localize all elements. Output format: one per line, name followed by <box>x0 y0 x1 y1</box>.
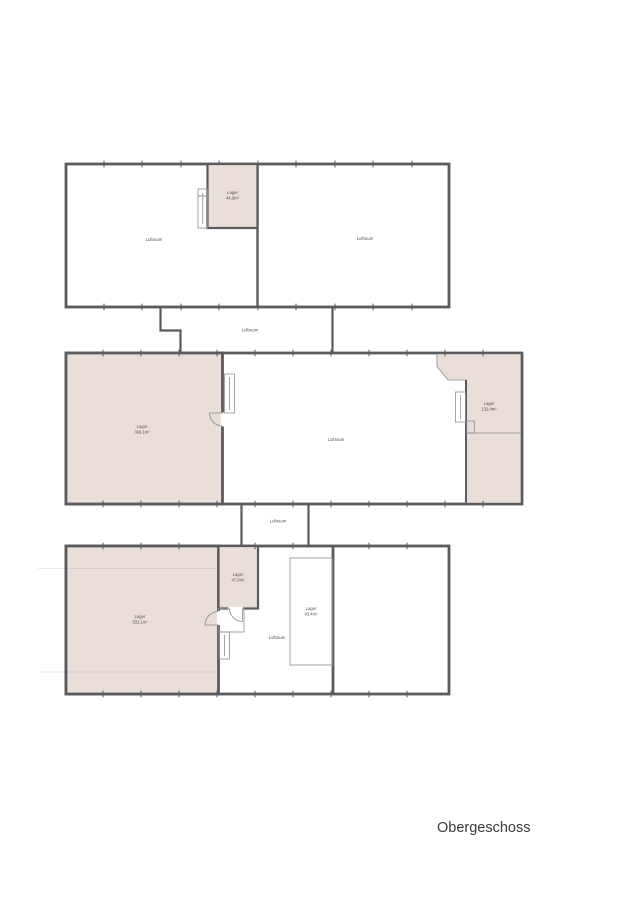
top-building: Luftraum Luftraum Lager 44,0m² <box>66 161 449 311</box>
room-area-bottom-platform-lager: 83,4m² <box>304 611 318 616</box>
connector-bottom: Luftraum <box>242 504 309 546</box>
room-label-mid-left-lager: Lager <box>137 424 148 429</box>
room-mid-right-lager <box>437 354 521 502</box>
bottom-door-1 <box>230 609 243 622</box>
room-label-luftraum-left: Luftraum <box>146 237 163 242</box>
room-area-bottom-small-lager: 47,0m² <box>231 577 245 582</box>
bottom-building: Lager 332,1m² Lager 47,0m² Lager 83,4m² … <box>38 543 449 698</box>
room-label-mid-void: Luftraum <box>328 437 345 442</box>
bottom-door-gap-1 <box>229 607 244 610</box>
connector-bottom-label: Luftraum <box>270 519 287 524</box>
room-label-bottom-platform-lager: Lager <box>306 606 317 611</box>
bottom-door-gap-2 <box>217 611 220 625</box>
floor-plan-page: Luftraum Luftraum Lager 44,0m² Luftraum … <box>0 0 637 900</box>
room-area-top-lager: 44,0m² <box>226 195 240 200</box>
room-area-mid-right-lager: 132,4m² <box>481 406 497 411</box>
room-label-bottom-left-lager: Lager <box>135 614 146 619</box>
bottom-vestibule <box>219 609 245 633</box>
room-label-luftraum-right: Luftraum <box>357 236 374 241</box>
floor-title: Obergeschoss <box>437 820 531 836</box>
room-area-bottom-left-lager: 332,1m² <box>132 619 148 624</box>
room-label-top-lager: Lager <box>227 190 238 195</box>
connector-top-left-wall <box>161 307 181 352</box>
room-label-bottom-small-lager: Lager <box>233 572 244 577</box>
room-area-mid-left-lager: 399,1m² <box>134 429 150 434</box>
connector-top: Luftraum <box>161 307 333 352</box>
middle-building: Lager 399,1m² Luftraum Lager 132,4m² <box>66 350 522 508</box>
connector-top-label: Luftraum <box>242 328 259 333</box>
floor-plan: Luftraum Luftraum Lager 44,0m² Luftraum … <box>0 0 637 900</box>
room-label-bottom-void: Luftraum <box>269 635 286 640</box>
room-label-mid-right-lager: Lager <box>484 401 495 406</box>
middle-door-gap <box>221 413 224 427</box>
